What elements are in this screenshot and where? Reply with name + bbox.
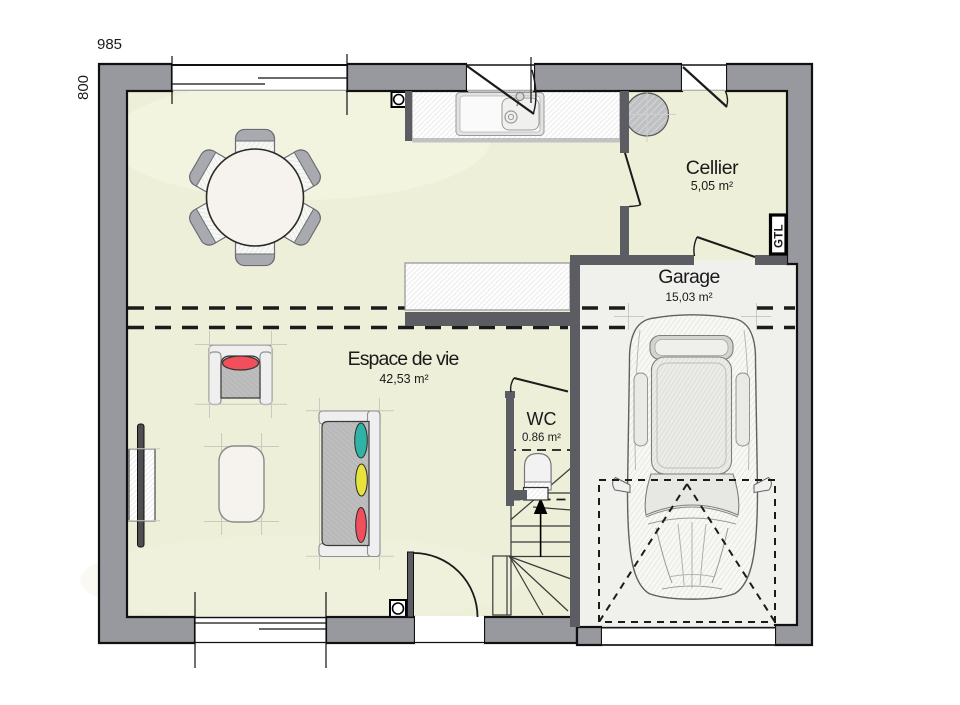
svg-text:Espace de vie: Espace de vie	[348, 348, 459, 370]
svg-text:985: 985	[97, 36, 122, 53]
svg-text:Garage: Garage	[658, 266, 719, 288]
svg-text:15,03 m²: 15,03 m²	[665, 290, 712, 304]
svg-text:5,05 m²: 5,05 m²	[691, 179, 733, 193]
svg-text:WC: WC	[527, 409, 557, 429]
svg-text:Cellier: Cellier	[686, 157, 739, 179]
svg-text:GTL: GTL	[774, 224, 786, 248]
svg-text:800: 800	[75, 75, 92, 100]
svg-text:42,53 m²: 42,53 m²	[379, 372, 428, 386]
svg-text:0.86 m²: 0.86 m²	[522, 432, 561, 444]
